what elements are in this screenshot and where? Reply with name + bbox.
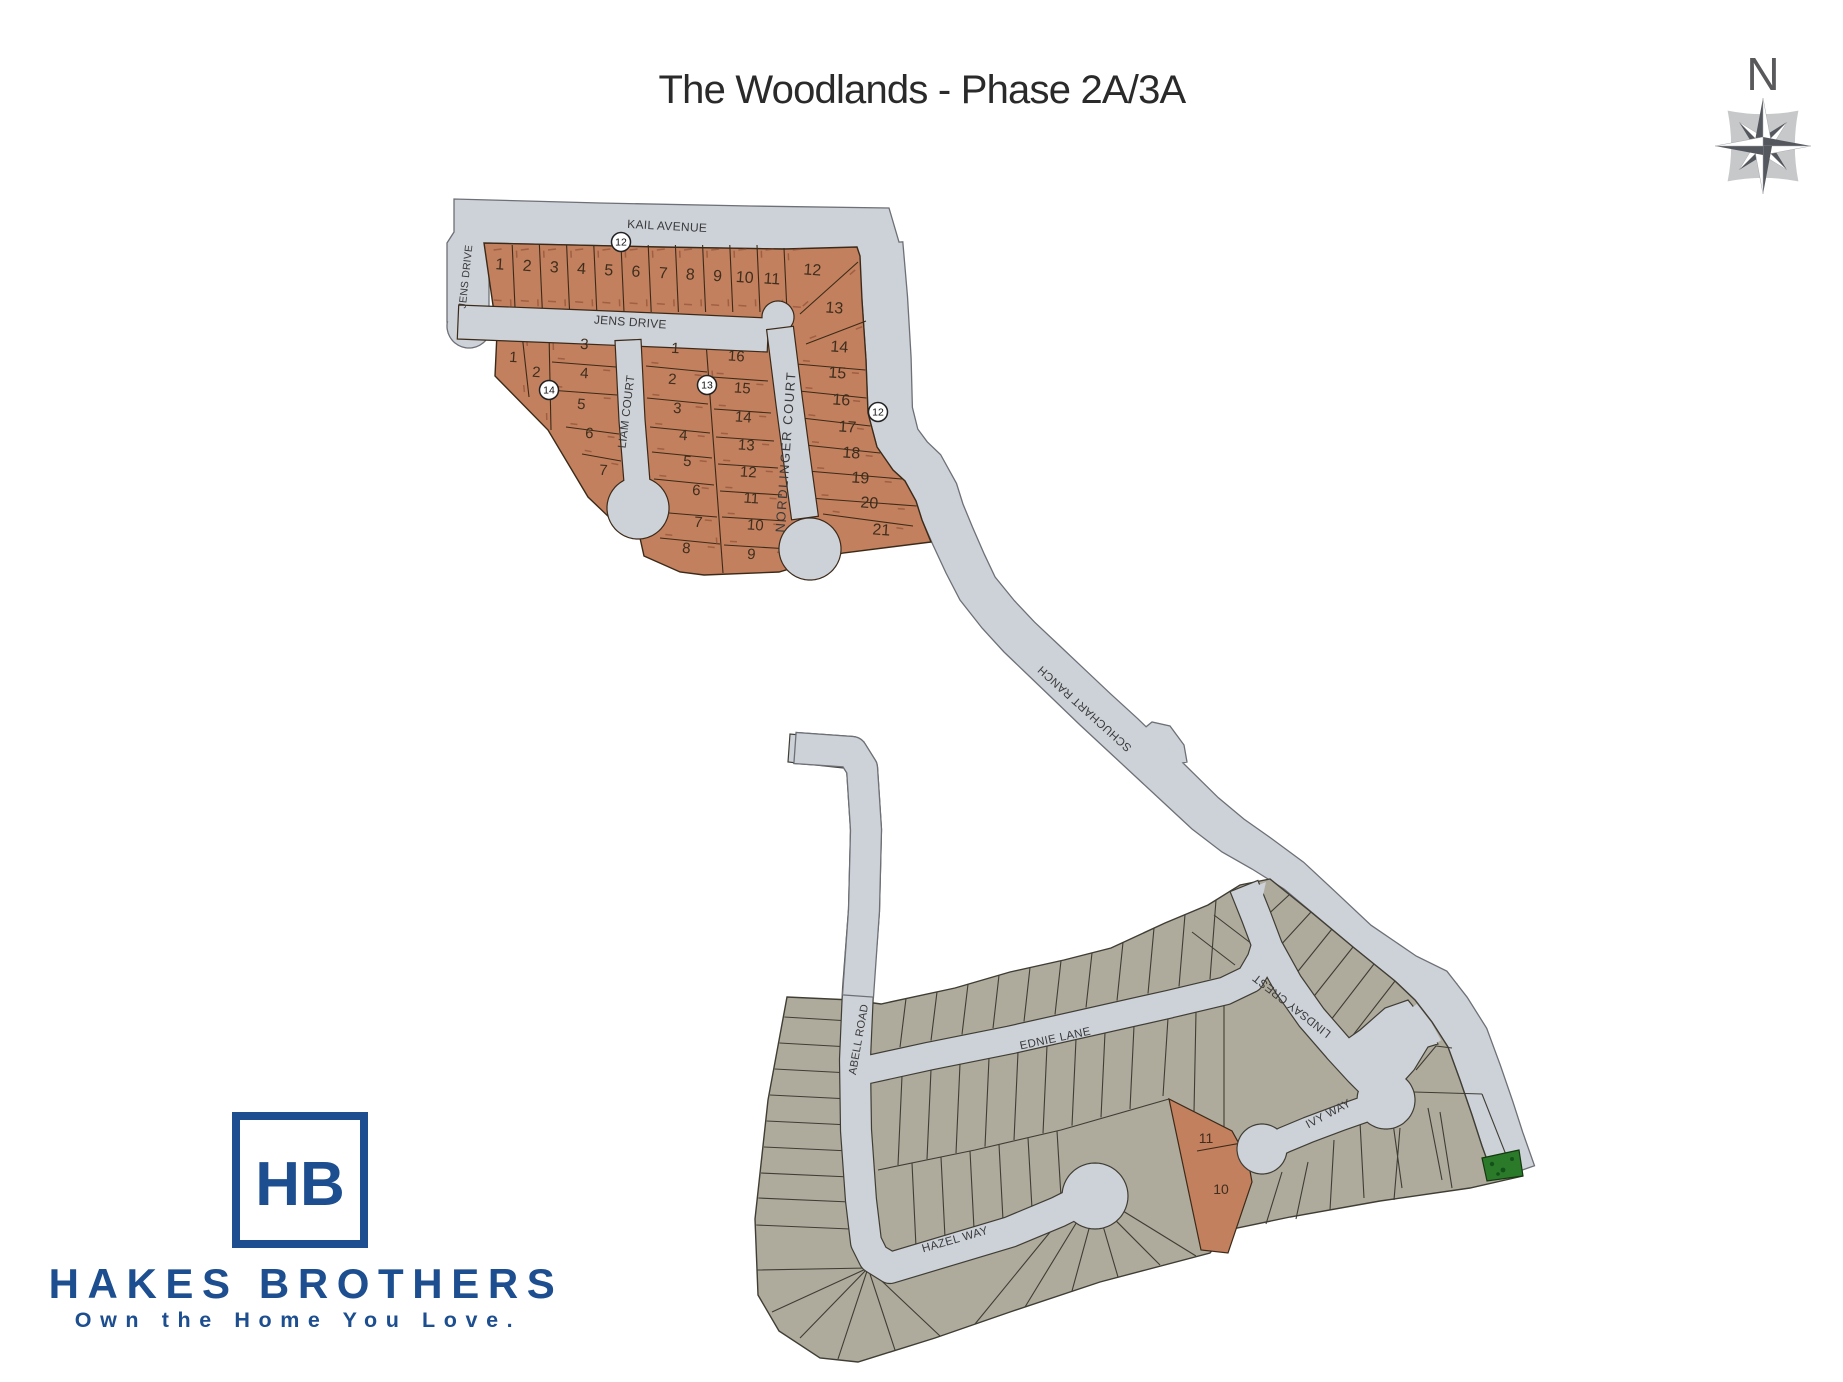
svg-text:13: 13 — [737, 436, 755, 454]
svg-text:11: 11 — [1199, 1130, 1214, 1146]
svg-text:11: 11 — [743, 489, 760, 507]
svg-text:6: 6 — [631, 263, 641, 281]
svg-text:The Woodlands - Phase 2A/3A: The Woodlands - Phase 2A/3A — [659, 68, 1187, 112]
svg-text:10: 10 — [746, 516, 764, 534]
svg-text:17: 17 — [838, 418, 857, 436]
svg-text:3: 3 — [673, 400, 683, 418]
svg-text:9: 9 — [712, 268, 722, 286]
svg-text:HAKES BROTHERS: HAKES BROTHERS — [49, 1260, 564, 1307]
svg-text:13: 13 — [825, 299, 844, 317]
svg-text:4: 4 — [576, 261, 586, 279]
svg-text:9: 9 — [747, 546, 757, 564]
svg-text:7: 7 — [658, 265, 668, 283]
svg-text:18: 18 — [842, 444, 861, 462]
svg-text:14: 14 — [543, 385, 555, 397]
svg-text:HB: HB — [255, 1150, 345, 1219]
svg-text:8: 8 — [682, 540, 692, 558]
svg-text:5: 5 — [683, 453, 693, 471]
svg-text:3: 3 — [549, 259, 559, 277]
svg-text:1: 1 — [495, 256, 505, 274]
svg-text:12: 12 — [803, 261, 822, 279]
svg-text:12: 12 — [739, 463, 757, 481]
svg-text:3: 3 — [580, 336, 590, 354]
svg-text:12: 12 — [872, 407, 884, 419]
svg-text:2: 2 — [522, 258, 532, 276]
svg-text:15: 15 — [733, 379, 751, 397]
svg-text:N: N — [1746, 48, 1779, 100]
svg-text:6: 6 — [692, 482, 702, 500]
svg-text:1: 1 — [671, 340, 681, 358]
svg-text:4: 4 — [580, 365, 590, 383]
svg-text:1: 1 — [509, 349, 519, 367]
svg-text:2: 2 — [668, 371, 678, 389]
svg-text:7: 7 — [694, 514, 704, 532]
svg-text:21: 21 — [872, 521, 891, 539]
svg-text:15: 15 — [828, 364, 847, 382]
svg-text:5: 5 — [604, 262, 614, 280]
svg-text:8: 8 — [685, 266, 695, 284]
svg-text:14: 14 — [830, 338, 849, 356]
svg-text:20: 20 — [860, 494, 879, 512]
svg-text:2: 2 — [532, 364, 542, 382]
svg-text:10: 10 — [1213, 1181, 1229, 1197]
svg-text:5: 5 — [577, 396, 587, 414]
svg-text:10: 10 — [735, 269, 754, 287]
svg-text:16: 16 — [727, 347, 745, 365]
svg-text:14: 14 — [734, 408, 752, 426]
svg-text:13: 13 — [701, 380, 713, 392]
svg-text:19: 19 — [851, 469, 870, 487]
svg-text:7: 7 — [599, 462, 609, 480]
svg-text:12: 12 — [615, 237, 627, 249]
svg-text:11: 11 — [763, 270, 781, 288]
svg-text:4: 4 — [679, 427, 689, 445]
svg-text:6: 6 — [585, 425, 595, 443]
svg-text:16: 16 — [832, 391, 851, 409]
svg-text:Own the Home You Love.: Own the Home You Love. — [75, 1308, 521, 1332]
